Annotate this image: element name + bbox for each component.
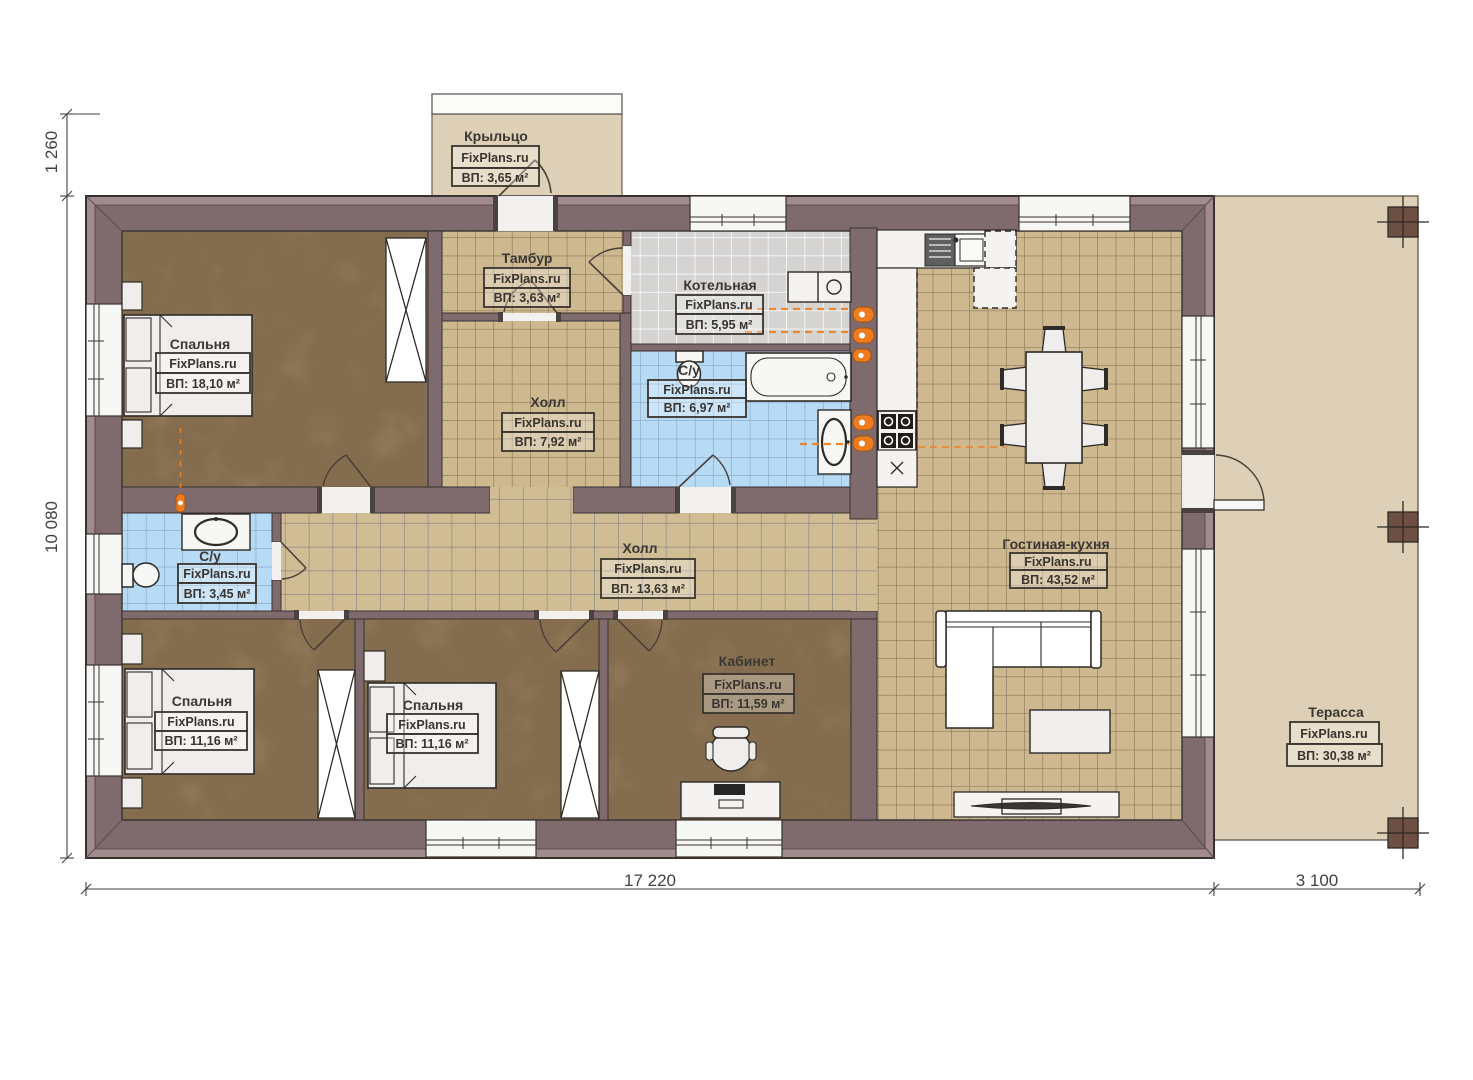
svg-text:ВП: 13,63 м²: ВП: 13,63 м² (611, 582, 685, 596)
svg-text:ВП: 11,16 м²: ВП: 11,16 м² (164, 734, 237, 748)
svg-text:FixPlans.ru: FixPlans.ru (493, 272, 560, 286)
svg-text:Холл: Холл (622, 540, 657, 556)
svg-text:Котельная: Котельная (683, 277, 756, 293)
svg-text:ВП: 3,63 м²: ВП: 3,63 м² (494, 291, 561, 305)
svg-text:17 220: 17 220 (624, 871, 676, 890)
svg-text:FixPlans.ru: FixPlans.ru (663, 383, 730, 397)
svg-text:FixPlans.ru: FixPlans.ru (614, 562, 681, 576)
svg-text:С/у: С/у (678, 362, 700, 378)
svg-text:ВП: 5,95 м²: ВП: 5,95 м² (686, 318, 753, 332)
svg-text:ВП: 18,10 м²: ВП: 18,10 м² (166, 377, 240, 391)
svg-text:ВП: 3,45 м²: ВП: 3,45 м² (184, 587, 251, 601)
svg-text:Холл: Холл (530, 394, 565, 410)
svg-text:FixPlans.ru: FixPlans.ru (714, 678, 781, 692)
svg-text:FixPlans.ru: FixPlans.ru (514, 416, 581, 430)
svg-text:Спальня: Спальня (170, 336, 230, 352)
svg-text:Крыльцо: Крыльцо (464, 128, 528, 144)
svg-text:С/у: С/у (199, 548, 221, 564)
svg-text:3 100: 3 100 (1296, 871, 1339, 890)
svg-text:FixPlans.ru: FixPlans.ru (169, 357, 236, 371)
svg-text:Гостиная-кухня: Гостиная-кухня (1002, 536, 1109, 552)
svg-text:FixPlans.ru: FixPlans.ru (167, 715, 234, 729)
svg-text:10 080: 10 080 (42, 501, 61, 553)
svg-text:FixPlans.ru: FixPlans.ru (398, 718, 465, 732)
svg-text:Спальня: Спальня (172, 693, 232, 709)
svg-text:FixPlans.ru: FixPlans.ru (1300, 727, 1367, 741)
svg-text:FixPlans.ru: FixPlans.ru (183, 567, 250, 581)
svg-text:1 260: 1 260 (42, 131, 61, 174)
svg-text:ВП: 7,92 м²: ВП: 7,92 м² (515, 435, 582, 449)
svg-text:ВП: 3,65 м²: ВП: 3,65 м² (462, 171, 529, 185)
svg-text:Терасса: Терасса (1308, 704, 1364, 720)
svg-text:ВП: 43,52 м²: ВП: 43,52 м² (1021, 573, 1095, 587)
svg-text:ВП: 6,97 м²: ВП: 6,97 м² (664, 401, 731, 415)
svg-text:FixPlans.ru: FixPlans.ru (1024, 555, 1091, 569)
svg-text:Тамбур: Тамбур (502, 250, 553, 266)
svg-text:ВП: 11,59 м²: ВП: 11,59 м² (711, 697, 784, 711)
svg-text:Кабинет: Кабинет (719, 653, 776, 669)
svg-text:Спальня: Спальня (403, 697, 463, 713)
svg-text:FixPlans.ru: FixPlans.ru (685, 298, 752, 312)
svg-text:ВП: 11,16 м²: ВП: 11,16 м² (395, 737, 468, 751)
svg-text:ВП: 30,38 м²: ВП: 30,38 м² (1297, 749, 1371, 763)
svg-text:FixPlans.ru: FixPlans.ru (461, 151, 528, 165)
